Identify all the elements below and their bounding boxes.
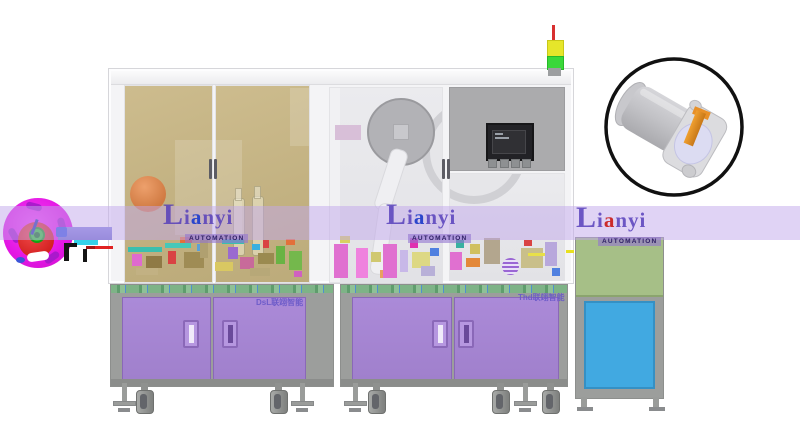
hmi-screen[interactable]: [492, 130, 526, 154]
machinery-part: [566, 250, 574, 253]
cabinet-door-handle[interactable]: [432, 320, 448, 348]
glass-reflection: [290, 88, 309, 146]
turntable-wheel-lower: [449, 173, 526, 204]
middle-bay-door-handle: [447, 159, 450, 179]
left-bay-door-handle: [214, 159, 217, 179]
cabinet-door-handle[interactable]: [458, 320, 474, 348]
machinery-part: [400, 250, 408, 272]
machinery-part: [356, 248, 368, 278]
right-machine: [575, 237, 664, 399]
enclosure-header-rail: [111, 71, 571, 85]
leg-machinefoot: [577, 397, 603, 431]
component-detail-inset: [602, 55, 746, 199]
machinery-part: [258, 253, 274, 264]
detail-inset-drawing: [602, 55, 746, 199]
cabinet-door-handle[interactable]: [183, 320, 199, 348]
machinery-part: [545, 242, 557, 266]
machinery-part: [521, 248, 543, 268]
machinery-part: [276, 246, 285, 264]
left-cabinet-label: DsL联翊智能: [256, 298, 303, 307]
machine-render-canvas: DsL联翊智能 Thd联翊智能 LianyiAUTOMATIONLianyiAU…: [0, 0, 800, 438]
right-machine-blue-panel: [584, 301, 655, 389]
watermark-logo: LianyiAUTOMATION: [576, 208, 671, 248]
signal-tower-antenna: [552, 25, 555, 40]
reel-blue-detail: [16, 257, 25, 263]
brand-text: Lianyi: [576, 208, 671, 230]
table-top-strip: [341, 285, 567, 293]
machinery-part: [289, 251, 302, 270]
panel-button[interactable]: [511, 159, 520, 168]
machinery-part: [466, 258, 480, 267]
machinery-part: [502, 258, 519, 275]
control-panel: [449, 87, 565, 171]
machinery-part: [168, 251, 176, 264]
cabinet-door-handle[interactable]: [222, 320, 238, 348]
hmi-screen-text-bar: [495, 137, 509, 139]
leg-foot: [514, 383, 540, 417]
leg-caster: [540, 383, 566, 417]
brand-text: Lianyi: [386, 205, 481, 227]
feeder-cyan-strip: [74, 240, 98, 245]
handle-slot: [438, 325, 443, 343]
feeder-post: [83, 249, 87, 262]
handle-slot: [228, 325, 233, 343]
brand-text: Lianyi: [163, 205, 258, 227]
machinery-part: [552, 268, 560, 276]
handle-slot: [464, 325, 469, 343]
machinery-part: [228, 247, 238, 259]
left-bay-door-handle: [209, 159, 212, 179]
machinery-part: [132, 254, 142, 266]
feeder-red-bar: [95, 246, 113, 249]
machinery-part: [430, 248, 439, 256]
right-cabinet-label: Thd联翊智能: [518, 293, 565, 302]
machinery-part: [146, 256, 162, 268]
table-top-strip: [111, 285, 333, 293]
brand-subtitle: AUTOMATION: [185, 234, 248, 243]
machinery-part: [294, 271, 302, 277]
feeder-red-bar: [86, 246, 95, 249]
disc-hub: [393, 124, 409, 140]
leg-caster: [134, 383, 160, 417]
machinery-part: [371, 252, 381, 262]
machinery-part: [484, 238, 500, 264]
watermark-logo: LianyiAUTOMATION: [163, 205, 258, 245]
watermark-logo: LianyiAUTOMATION: [386, 205, 481, 245]
brand-subtitle: AUTOMATION: [408, 234, 471, 243]
machinery-part: [383, 244, 397, 278]
machinery-part: [334, 244, 348, 278]
hmi-screen-bezel: [486, 123, 534, 161]
machinery-part: [250, 268, 270, 276]
hmi-screen-text-bar: [495, 133, 503, 135]
machinery-part: [128, 247, 162, 252]
machinery-part: [215, 262, 233, 271]
bottle-neck: [235, 188, 242, 201]
leg-machinefoot: [649, 397, 675, 431]
machinery-part: [524, 240, 532, 246]
machinery-part: [136, 268, 158, 275]
machinery-part: [450, 252, 462, 270]
leg-caster: [490, 383, 516, 417]
middle-bay-door-handle: [442, 159, 445, 179]
leg-caster: [366, 383, 392, 417]
feeder-post: [64, 244, 69, 261]
machinery-part: [470, 244, 480, 254]
panel-button[interactable]: [500, 159, 509, 168]
lavender-fixture: [335, 125, 361, 140]
machinery-part: [263, 240, 269, 248]
handle-slot: [189, 325, 194, 343]
bottle-neck: [254, 186, 261, 199]
machinery-part: [421, 266, 435, 276]
panel-button[interactable]: [522, 159, 531, 168]
signal-tower-base: [548, 68, 561, 76]
brand-subtitle: AUTOMATION: [598, 237, 661, 246]
leg-foot: [291, 383, 317, 417]
panel-button[interactable]: [488, 159, 497, 168]
